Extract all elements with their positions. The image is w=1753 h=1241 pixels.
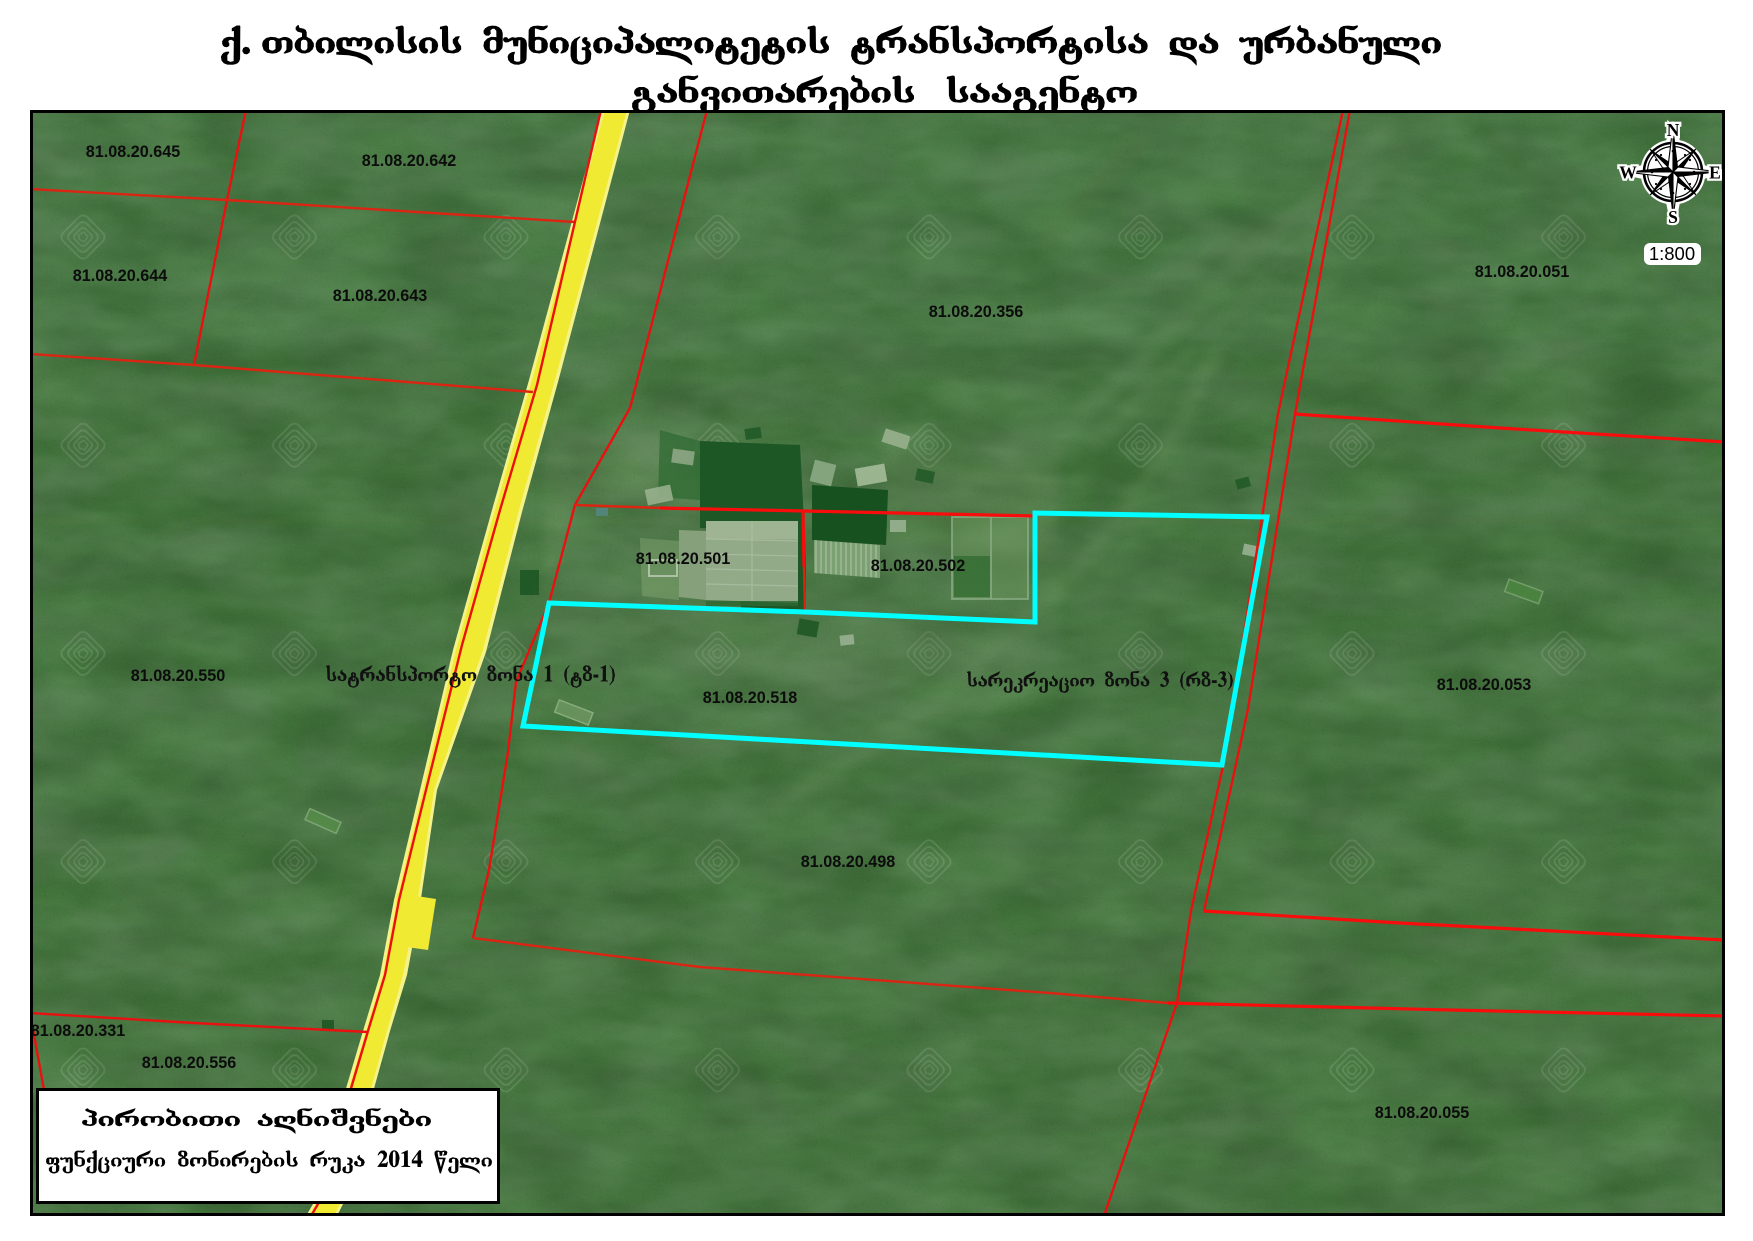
svg-text:81.08.20.642: 81.08.20.642 [362, 152, 457, 170]
svg-text:81.08.20.556: 81.08.20.556 [142, 1054, 237, 1072]
svg-text:81.08.20.550: 81.08.20.550 [131, 667, 226, 685]
svg-text:81.08.20.501: 81.08.20.501 [636, 550, 731, 568]
svg-text:81.08.20.643: 81.08.20.643 [333, 287, 428, 305]
svg-text:81.08.20.331: 81.08.20.331 [31, 1022, 126, 1040]
svg-text:1:800: 1:800 [1649, 243, 1695, 264]
svg-text:81.08.20.498: 81.08.20.498 [801, 853, 896, 871]
svg-text:81.08.20.055: 81.08.20.055 [1375, 1104, 1470, 1122]
svg-text:81.08.20.356: 81.08.20.356 [929, 303, 1024, 321]
svg-text:81.08.20.644: 81.08.20.644 [73, 267, 168, 285]
svg-text:N: N [1667, 120, 1680, 140]
svg-text:81.08.20.502: 81.08.20.502 [871, 557, 966, 575]
svg-text:81.08.20.053: 81.08.20.053 [1437, 676, 1532, 694]
svg-text:81.08.20.518: 81.08.20.518 [703, 689, 798, 707]
svg-text:E: E [1709, 163, 1721, 183]
svg-text:S: S [1668, 207, 1678, 227]
svg-text:81.08.20.051: 81.08.20.051 [1475, 263, 1570, 281]
svg-text:81.08.20.645: 81.08.20.645 [86, 143, 181, 161]
svg-text:W: W [1619, 163, 1637, 183]
